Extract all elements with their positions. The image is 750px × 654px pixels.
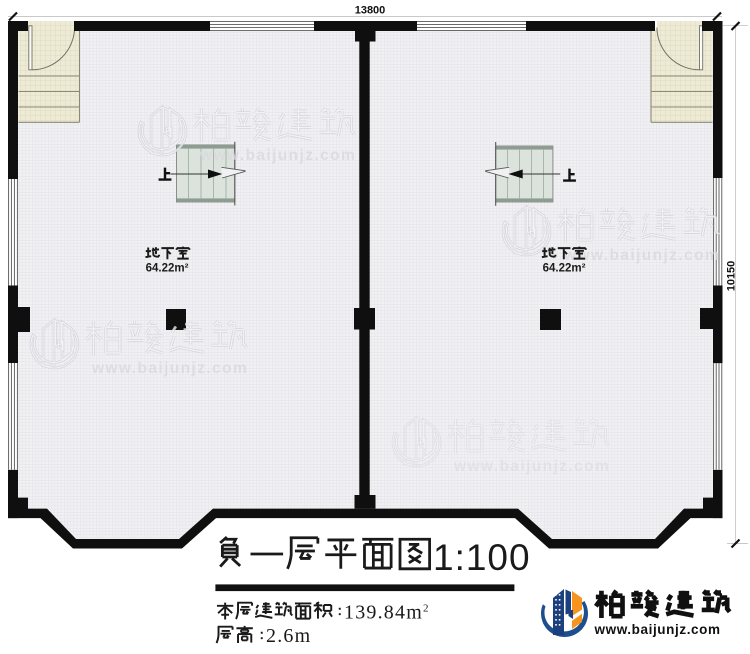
svg-text:64.22m²: 64.22m²: [146, 263, 189, 275]
svg-text:www.baijunjz.com: www.baijunjz.com: [594, 622, 721, 637]
svg-text:10150: 10150: [726, 261, 738, 292]
svg-text:139.84m2: 139.84m2: [344, 602, 430, 624]
svg-text:1:100: 1:100: [433, 537, 531, 578]
svg-text:2.6m: 2.6m: [266, 625, 311, 647]
svg-text:13800: 13800: [355, 5, 386, 17]
svg-text:64.22m²: 64.22m²: [543, 263, 586, 275]
